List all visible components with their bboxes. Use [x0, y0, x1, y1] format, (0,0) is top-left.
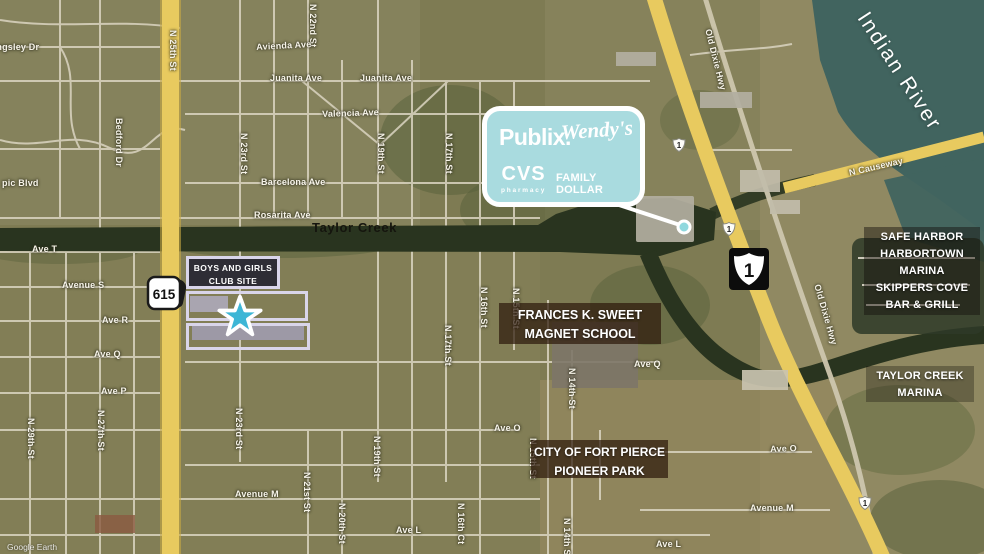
family-dollar-logo: FAMILY DOLLAR [556, 172, 640, 196]
safe-harbor-marina-label: SAFE HARBOR HARBORTOWN MARINA SKIPPERS C… [864, 227, 980, 315]
map-canvas[interactable]: Kingsley DrN 25th StN 22nd StAvienda Ave… [0, 0, 984, 554]
map-attribution: Google Earth [7, 542, 57, 552]
us-1-marker-icon: 1 [858, 495, 872, 516]
svg-text:1: 1 [727, 225, 732, 234]
us-1-marker-icon: 1 [672, 137, 686, 158]
site-label-line2: CLUB SITE [189, 275, 277, 288]
svg-text:615: 615 [153, 287, 176, 302]
frances-k-sweet-school-label: FRANCES K. SWEET MAGNET SCHOOL [499, 303, 661, 344]
svg-text:1: 1 [677, 141, 682, 150]
site-label-line1: BOYS AND GIRLS [189, 262, 277, 275]
svg-text:1: 1 [744, 261, 755, 282]
site-star-icon [217, 293, 263, 339]
us-1-route-shield: 1 [729, 248, 769, 290]
site-label-box: BOYS AND GIRLS CLUB SITE [186, 256, 280, 289]
taylor-creek-marina-label: TAYLOR CREEK MARINA [866, 366, 974, 402]
taylor-creek-label: Taylor Creek [312, 220, 397, 235]
svg-text:1: 1 [863, 499, 868, 508]
wendys-logo: Wendy's [560, 116, 634, 146]
cvs-pharmacy-logo: CVS pharmacy [501, 163, 546, 194]
pioneer-park-label: CITY OF FORT PIERCE PIONEER PARK [531, 440, 668, 478]
tenant-callout: Publix. Wendy's CVS pharmacy FAMILY DOLL… [482, 106, 645, 207]
fl-615-route-shield: 615 [146, 274, 190, 314]
us-1-marker-icon: 1 [722, 221, 736, 242]
